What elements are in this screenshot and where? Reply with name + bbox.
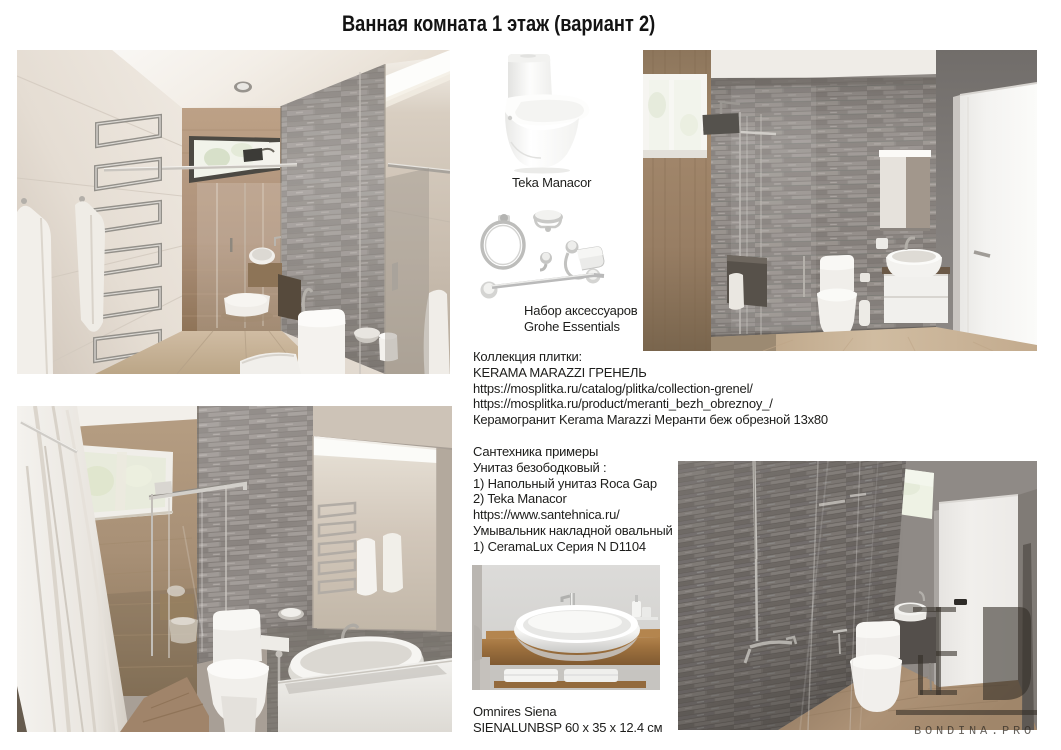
svg-text:BONDINA.PRO: BONDINA.PRO xyxy=(914,724,1035,738)
